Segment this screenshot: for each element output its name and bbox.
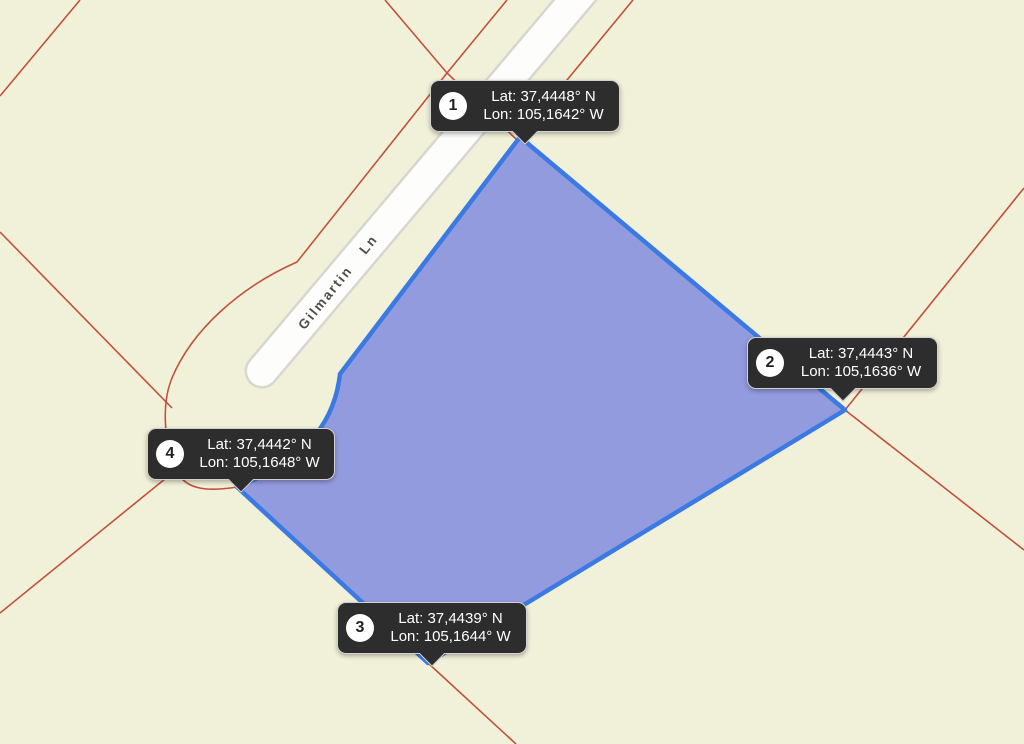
longitude-label: Lon: 105,1636° W bbox=[797, 363, 925, 381]
marker-number-badge: 1 bbox=[439, 92, 467, 120]
latitude-label: Lat: 37,4448° N bbox=[480, 88, 607, 106]
marker-number-badge: 2 bbox=[756, 349, 784, 377]
marker-tooltip-1[interactable]: 1 Lat: 37,4448° N Lon: 105,1642° W bbox=[430, 80, 620, 132]
marker-tooltip-4[interactable]: 4 Lat: 37,4442° N Lon: 105,1648° W bbox=[147, 428, 335, 480]
latitude-label: Lat: 37,4443° N bbox=[797, 345, 925, 363]
map-canvas[interactable]: Gilmartin Ln 1 Lat: 37,4448° N Lon: 105,… bbox=[0, 0, 1024, 744]
marker-number-badge: 3 bbox=[346, 614, 374, 642]
longitude-label: Lon: 105,1644° W bbox=[387, 628, 514, 646]
longitude-label: Lon: 105,1642° W bbox=[480, 106, 607, 124]
marker-coordinates: Lat: 37,4439° N Lon: 105,1644° W bbox=[387, 610, 514, 646]
latitude-label: Lat: 37,4442° N bbox=[197, 436, 322, 454]
longitude-label: Lon: 105,1648° W bbox=[197, 454, 322, 472]
marker-tooltip-2[interactable]: 2 Lat: 37,4443° N Lon: 105,1636° W bbox=[747, 337, 938, 389]
marker-coordinates: Lat: 37,4443° N Lon: 105,1636° W bbox=[797, 345, 925, 381]
latitude-label: Lat: 37,4439° N bbox=[387, 610, 514, 628]
marker-tooltip-3[interactable]: 3 Lat: 37,4439° N Lon: 105,1644° W bbox=[337, 602, 527, 654]
marker-number-badge: 4 bbox=[156, 440, 184, 468]
marker-coordinates: Lat: 37,4442° N Lon: 105,1648° W bbox=[197, 436, 322, 472]
marker-coordinates: Lat: 37,4448° N Lon: 105,1642° W bbox=[480, 88, 607, 124]
